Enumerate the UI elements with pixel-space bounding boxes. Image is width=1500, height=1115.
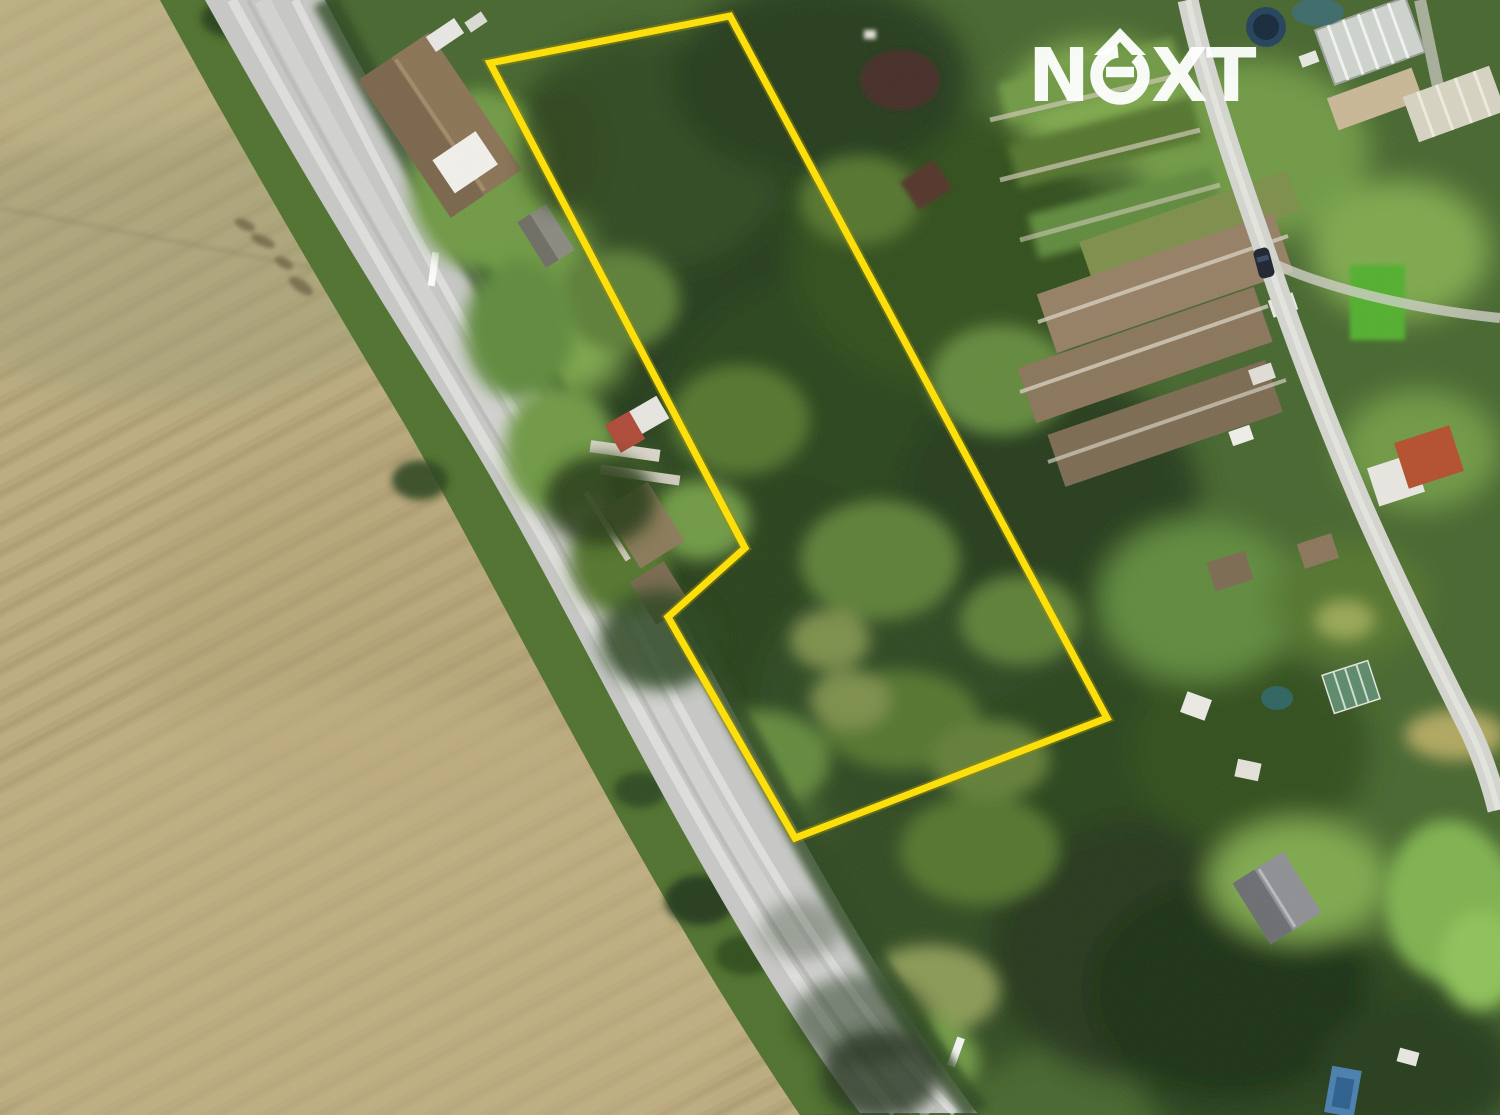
logo-roof-icon [1094, 28, 1146, 55]
brand-watermark: N X T [1020, 20, 1270, 120]
satellite-image [0, 0, 1500, 1115]
logo-letter-n: N [1028, 33, 1090, 119]
logo-letter-t: T [1206, 33, 1257, 119]
aerial-photo-listing: N X T [0, 0, 1500, 1115]
logo-letter-x: X [1151, 33, 1208, 119]
photo-grain-overlay [0, 0, 1500, 1115]
logo-letter-e [1094, 28, 1146, 99]
